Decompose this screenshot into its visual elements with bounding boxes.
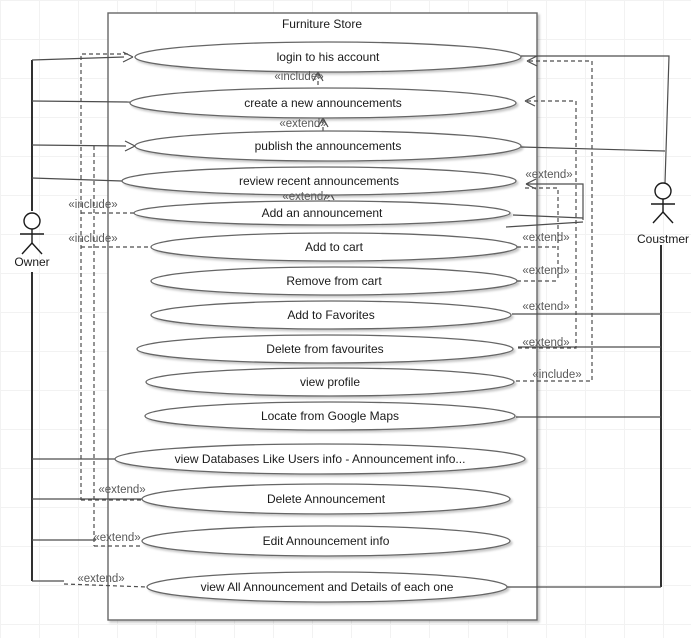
usecase-add-announcement[interactable]: Add an announcement: [134, 201, 510, 225]
usecase-view-profile[interactable]: view profile: [146, 368, 514, 396]
stereotype-include-right-1: «include»: [532, 369, 581, 381]
usecase-create-label: create a new announcements: [244, 96, 401, 110]
stereotype-extend-left-2: «extend»: [93, 532, 140, 544]
actor-owner-label: Owner: [14, 255, 49, 269]
usecase-add-favorites-label: Add to Favorites: [287, 308, 374, 322]
actor-owner[interactable]: Owner: [14, 213, 49, 269]
stereotype-include-mid-1: «include»: [274, 71, 323, 83]
usecase-view-databases-label: view Databases Like Users info - Announc…: [175, 452, 466, 466]
assoc-customer-publish: [521, 147, 665, 151]
usecase-add-cart-label: Add to cart: [305, 240, 364, 254]
usecase-publish-label: publish the announcements: [255, 139, 402, 153]
stereotype-extend-right-1: «extend»: [525, 169, 572, 181]
usecase-edit-announcement[interactable]: Edit Announcement info: [142, 526, 510, 556]
stereotype-extend-left-3: «extend»: [77, 573, 124, 585]
usecase-view-all-label: view All Announcement and Details of eac…: [201, 580, 454, 594]
usecase-view-profile-label: view profile: [300, 375, 360, 389]
stereotype-extend-mid-2: «extend»: [282, 191, 329, 203]
usecase-login-label: login to his account: [277, 50, 380, 64]
usecase-locate-maps-label: Locate from Google Maps: [261, 409, 399, 423]
usecase-view-databases[interactable]: view Databases Like Users info - Announc…: [115, 444, 525, 474]
stereotype-extend-left-1: «extend»: [98, 484, 145, 496]
usecase-view-all-announcements[interactable]: view All Announcement and Details of eac…: [147, 572, 507, 602]
usecase-review-label: review recent announcements: [239, 174, 399, 188]
system-title: Furniture Store: [282, 17, 362, 31]
usecase-publish-announcement[interactable]: publish the announcements: [135, 131, 521, 161]
customer-stick-figure-icon: [651, 183, 675, 223]
usecase-locate-maps[interactable]: Locate from Google Maps: [145, 402, 515, 430]
stereotype-extend-right-3: «extend»: [522, 265, 569, 277]
usecase-delete-favourites[interactable]: Delete from favourites: [137, 335, 513, 363]
usecase-login[interactable]: login to his account: [135, 42, 521, 72]
usecase-add-to-cart[interactable]: Add to cart: [151, 233, 517, 261]
stereotype-extend-right-2: «extend»: [522, 232, 569, 244]
usecase-add-announcement-label: Add an announcement: [262, 206, 383, 220]
owner-stick-figure-icon: [20, 213, 44, 254]
actor-customer-label: Coustmer: [637, 232, 689, 246]
stereotype-extend-mid-1: «extend»: [279, 118, 326, 130]
usecase-remove-from-cart[interactable]: Remove from cart: [151, 267, 517, 295]
stereotype-include-left-1: «include»: [68, 199, 117, 211]
stereotype-extend-right-5: «extend»: [522, 337, 569, 349]
stereotype-extend-right-4: «extend»: [522, 301, 569, 313]
usecase-create-announcement[interactable]: create a new announcements: [130, 88, 516, 118]
usecase-delete-announcement-label: Delete Announcement: [267, 492, 386, 506]
usecase-delete-announcement[interactable]: Delete Announcement: [142, 484, 510, 514]
diagram-canvas: Furniture Store: [0, 0, 691, 638]
usecase-edit-announcement-label: Edit Announcement info: [263, 534, 390, 548]
usecase-remove-cart-label: Remove from cart: [286, 274, 382, 288]
assoc-customer-login: [521, 56, 669, 183]
usecase-delete-favourites-label: Delete from favourites: [266, 342, 383, 356]
stereotype-include-left-2: «include»: [68, 233, 117, 245]
usecase-diagram: Furniture Store: [0, 0, 691, 638]
usecase-add-favorites[interactable]: Add to Favorites: [151, 301, 511, 329]
actor-customer[interactable]: Coustmer: [637, 183, 689, 246]
